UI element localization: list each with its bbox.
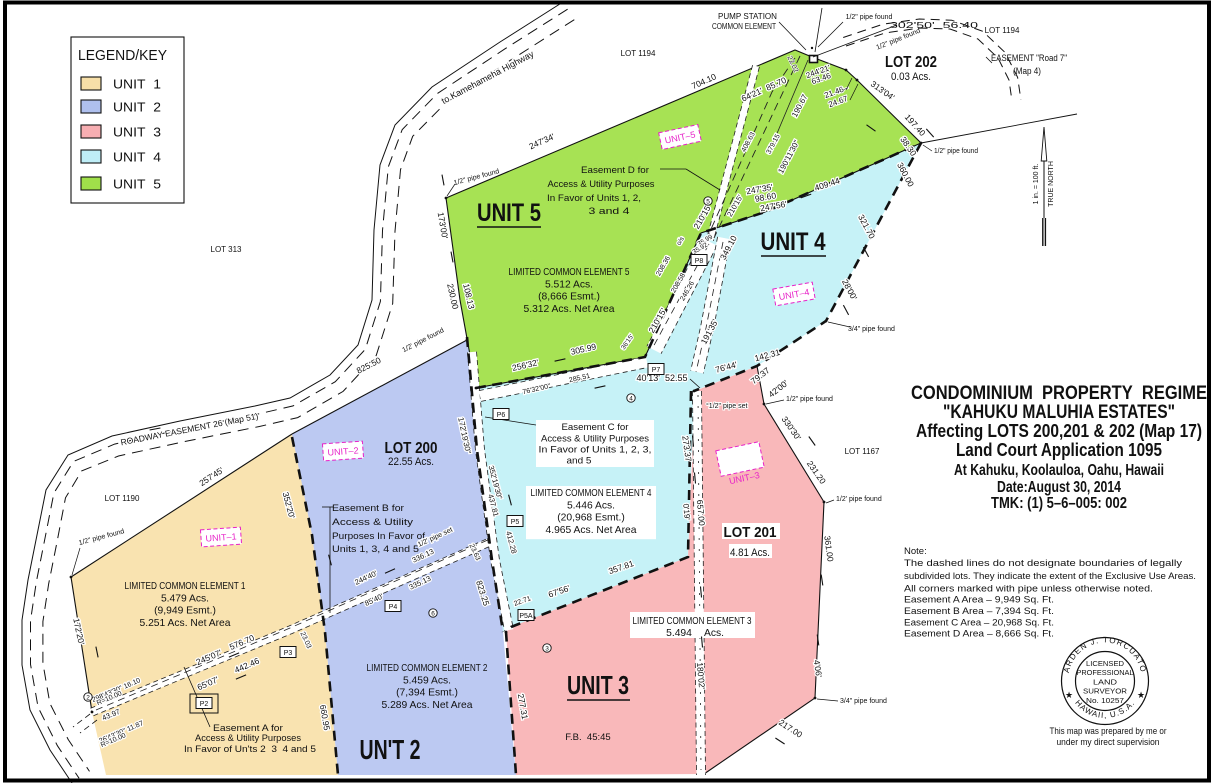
svg-text:Easement C for: Easement C for (562, 422, 629, 433)
svg-text:1/2" pipe found: 1/2" pipe found (846, 14, 893, 21)
svg-text:4.81 Acs.: 4.81 Acs. (730, 547, 770, 559)
svg-text:(7,394 Esmt.): (7,394 Esmt.) (396, 688, 458, 699)
svg-text:LIMITED COMMON ELEMENT 1: LIMITED COMMON ELEMENT 1 (125, 581, 246, 592)
svg-text:Easement A Area – 9,949 Sq. Ft: Easement A Area – 9,949 Sq. Ft. (904, 595, 1054, 605)
svg-text:TRUE NORTH: TRUE NORTH (1048, 161, 1055, 207)
svg-text:5.494: 5.494 (666, 628, 692, 639)
svg-text:0'19': 0'19' (681, 503, 691, 521)
svg-text:5.251 Acs. Net Area: 5.251 Acs. Net Area (139, 618, 230, 629)
svg-text:UNIT 3: UNIT 3 (567, 670, 629, 700)
svg-text:The dashed lines do not design: The dashed lines do not designate bounda… (904, 558, 1182, 568)
svg-text:PUMP STATION: PUMP STATION (718, 11, 777, 21)
svg-text:LIMITED COMMON ELEMENT 4: LIMITED COMMON ELEMENT 4 (531, 488, 652, 499)
svg-text:Units 1, 3, 4 and 5: Units 1, 3, 4 and 5 (332, 544, 419, 555)
svg-text:★: ★ (1137, 690, 1145, 700)
svg-text:P2: P2 (200, 701, 209, 708)
svg-text:Easement B Area – 7,394 Sq. Ft: Easement B Area – 7,394 Sq. Ft. (904, 606, 1054, 616)
svg-text:COMMON ELEMENT: COMMON ELEMENT (712, 21, 776, 31)
svg-text:UNIT 5: UNIT 5 (113, 177, 161, 192)
svg-text:Access & Utility Purposes: Access & Utility Purposes (195, 733, 301, 744)
svg-text:LAND: LAND (1093, 677, 1117, 686)
svg-text:5.289 Acs. Net Area: 5.289 Acs. Net Area (381, 700, 472, 711)
svg-text:LIMITED COMMON ELEMENT 2: LIMITED COMMON ELEMENT 2 (367, 663, 488, 674)
svg-text:302'50' 56.40: 302'50' 56.40 (890, 20, 978, 30)
svg-text:Access & Utility Purposes: Access & Utility Purposes (548, 179, 655, 190)
svg-text:3 and 4: 3 and 4 (589, 206, 630, 217)
svg-text:P6: P6 (497, 412, 506, 419)
svg-text:★: ★ (1065, 690, 1073, 700)
svg-text:3/4" pipe found: 3/4" pipe found (840, 698, 887, 705)
svg-text:LIMITED COMMON ELEMENT 3: LIMITED COMMON ELEMENT 3 (633, 616, 752, 627)
svg-text:1/2' pipe found: 1/2' pipe found (836, 496, 882, 503)
svg-text:5.459 Acs.: 5.459 Acs. (403, 675, 451, 686)
svg-text:5.446 Acs.: 5.446 Acs. (567, 500, 615, 511)
svg-text:4.965 Acs. Net Area: 4.965 Acs. Net Area (545, 525, 636, 536)
svg-text:5.312 Acs. Net Area: 5.312 Acs. Net Area (523, 304, 614, 315)
svg-text:Access & Utility Purposes: Access & Utility Purposes (541, 434, 649, 445)
svg-text:UNIT 1: UNIT 1 (113, 77, 161, 92)
svg-text:1/2" pipe found: 1/2" pipe found (934, 148, 978, 155)
svg-text:CONDOMINIUM PROPERTY REGIME: CONDOMINIUM PROPERTY REGIME (911, 383, 1207, 404)
svg-text:22.55 Acs.: 22.55 Acs. (388, 456, 434, 468)
svg-text:(8,666 Esmt.): (8,666 Esmt.) (538, 292, 600, 303)
svg-text:P7: P7 (652, 367, 661, 374)
svg-text:Purposes In Favor of: Purposes In Favor of (332, 531, 425, 542)
svg-text:Access & Utility: Access & Utility (332, 517, 413, 528)
svg-text:Affecting LOTS 200,201 & 202 (: Affecting LOTS 200,201 & 202 (Map 17) (916, 420, 1202, 441)
svg-text:UN'T 2: UN'T 2 (360, 734, 421, 765)
svg-text:Note:: Note: (904, 546, 927, 557)
svg-text:In Favor of Units 1, 2,: In Favor of Units 1, 2, (547, 193, 641, 204)
svg-text:5.479 Acs.: 5.479 Acs. (161, 593, 209, 604)
svg-text:P5: P5 (511, 519, 520, 526)
svg-text:°1/2" pipe set: °1/2" pipe set (706, 402, 748, 410)
svg-text:LEGEND/KEY: LEGEND/KEY (78, 48, 167, 64)
svg-text:Easement D Area – 8,666 Sq. Ft: Easement D Area – 8,666 Sq. Ft. (904, 629, 1054, 639)
svg-text:Easement B for: Easement B for (332, 503, 404, 514)
svg-text:LICENSED: LICENSED (1086, 659, 1124, 668)
svg-text:SURVEYOR: SURVEYOR (1083, 687, 1127, 696)
svg-text:Easement C Area – 20,968 Sq. F: Easement C Area – 20,968 Sq. Ft. (904, 617, 1054, 627)
svg-text:LOT 1194: LOT 1194 (985, 26, 1020, 35)
svg-text:PROFESSIONAL: PROFESSIONAL (1077, 668, 1134, 677)
svg-text:subdivided lots. They indicate: subdivided lots. They indicate the exten… (904, 571, 1196, 581)
svg-text:Easement D for: Easement D for (581, 165, 649, 176)
svg-text:P3: P3 (284, 650, 293, 657)
svg-text:LOT 1190: LOT 1190 (105, 494, 140, 503)
svg-text:P4: P4 (389, 604, 398, 611)
svg-text:0.03 Acs.: 0.03 Acs. (891, 71, 931, 83)
svg-text:(Map 4): (Map 4) (1013, 66, 1041, 76)
svg-text:(20,968 Esmt.): (20,968 Esmt.) (557, 513, 625, 524)
svg-text:4: 4 (629, 396, 633, 403)
svg-text:and 5: and 5 (567, 456, 592, 467)
svg-text:UNIT 2: UNIT 2 (113, 100, 161, 115)
svg-text:UNIT 4: UNIT 4 (113, 150, 161, 165)
svg-text:LOT 201: LOT 201 (724, 524, 777, 541)
svg-text:P5A: P5A (519, 613, 533, 620)
svg-text:1 in. = 100 ft.: 1 in. = 100 ft. (1033, 164, 1040, 205)
svg-text:2: 2 (86, 695, 90, 702)
svg-text:3: 3 (545, 646, 549, 653)
svg-text:LIMITED COMMON ELEMENT 5: LIMITED COMMON ELEMENT 5 (509, 267, 630, 278)
svg-text:(9,949 Esmt.): (9,949 Esmt.) (154, 606, 216, 617)
svg-text:Date:August 30, 2014: Date:August 30, 2014 (997, 479, 1121, 496)
svg-text:UNIT 4: UNIT 4 (761, 228, 826, 256)
svg-text:EASEMENT "Road 7": EASEMENT "Road 7" (991, 53, 1067, 63)
svg-text:6: 6 (431, 611, 435, 618)
svg-text:Land Court Application 1095: Land Court Application 1095 (956, 439, 1162, 460)
svg-text:P8: P8 (695, 258, 704, 265)
svg-text:5: 5 (706, 199, 710, 206)
svg-text:No. 10257: No. 10257 (1086, 696, 1124, 705)
svg-text:This map was prepared by me or: This map was prepared by me or (1050, 726, 1167, 736)
svg-text:LOT 1167: LOT 1167 (845, 447, 880, 456)
svg-text:LOT 200: LOT 200 (385, 440, 438, 457)
svg-text:LOT 1194: LOT 1194 (621, 49, 656, 58)
svg-text:UNIT 5: UNIT 5 (477, 199, 541, 227)
svg-text:At Kahuku, Koolauloa, Oahu, Ha: At Kahuku, Koolauloa, Oahu, Hawaii (954, 462, 1164, 479)
svg-text:under my direct supervision: under my direct supervision (1057, 737, 1160, 747)
svg-text:5.512 Acs.: 5.512 Acs. (545, 279, 593, 290)
svg-text:In Favor of Units 1, 2, 3,: In Favor of Units 1, 2, 3, (539, 445, 652, 456)
svg-text:3/4" pipe found: 3/4" pipe found (848, 326, 895, 333)
svg-text:TMK: (1) 5–6–005: 002: TMK: (1) 5–6–005: 002 (991, 495, 1127, 512)
svg-text:F.B. 45:45: F.B. 45:45 (565, 732, 610, 743)
svg-text:Acs.: Acs. (704, 628, 724, 639)
svg-text:LOT 202: LOT 202 (885, 54, 937, 71)
svg-text:UNIT 3: UNIT 3 (113, 125, 161, 140)
svg-text:All corners marked with pipe u: All corners marked with pipe unless othe… (904, 584, 1153, 594)
svg-text:1/2" pipe found: 1/2" pipe found (786, 396, 833, 403)
svg-text:In Favor of Un'ts 2 3 4 and: In Favor of Un'ts 2 3 4 and 5 (184, 744, 316, 755)
svg-text:LOT 313: LOT 313 (211, 245, 243, 254)
